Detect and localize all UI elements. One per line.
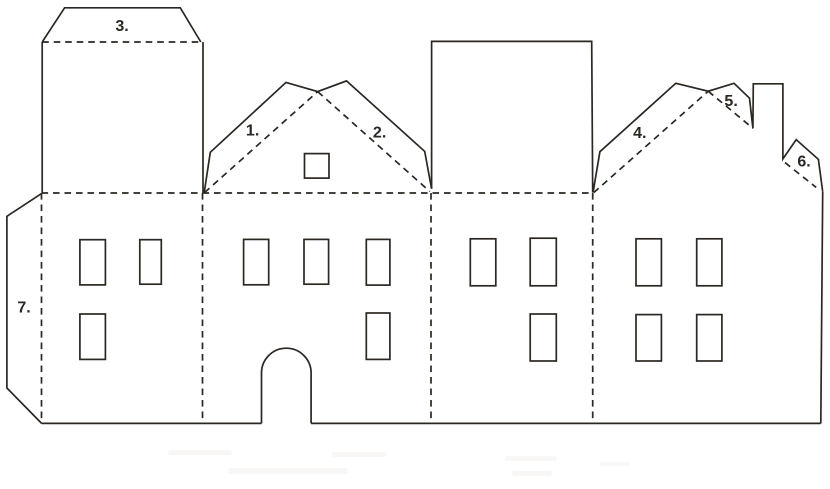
svg-text:2.: 2. bbox=[373, 125, 386, 142]
svg-text:7.: 7. bbox=[17, 300, 30, 317]
svg-text:3.: 3. bbox=[115, 18, 128, 35]
svg-text:5.: 5. bbox=[724, 93, 737, 110]
svg-text:6.: 6. bbox=[797, 154, 810, 171]
svg-text:1.: 1. bbox=[246, 123, 259, 140]
svg-text:4.: 4. bbox=[633, 125, 646, 142]
